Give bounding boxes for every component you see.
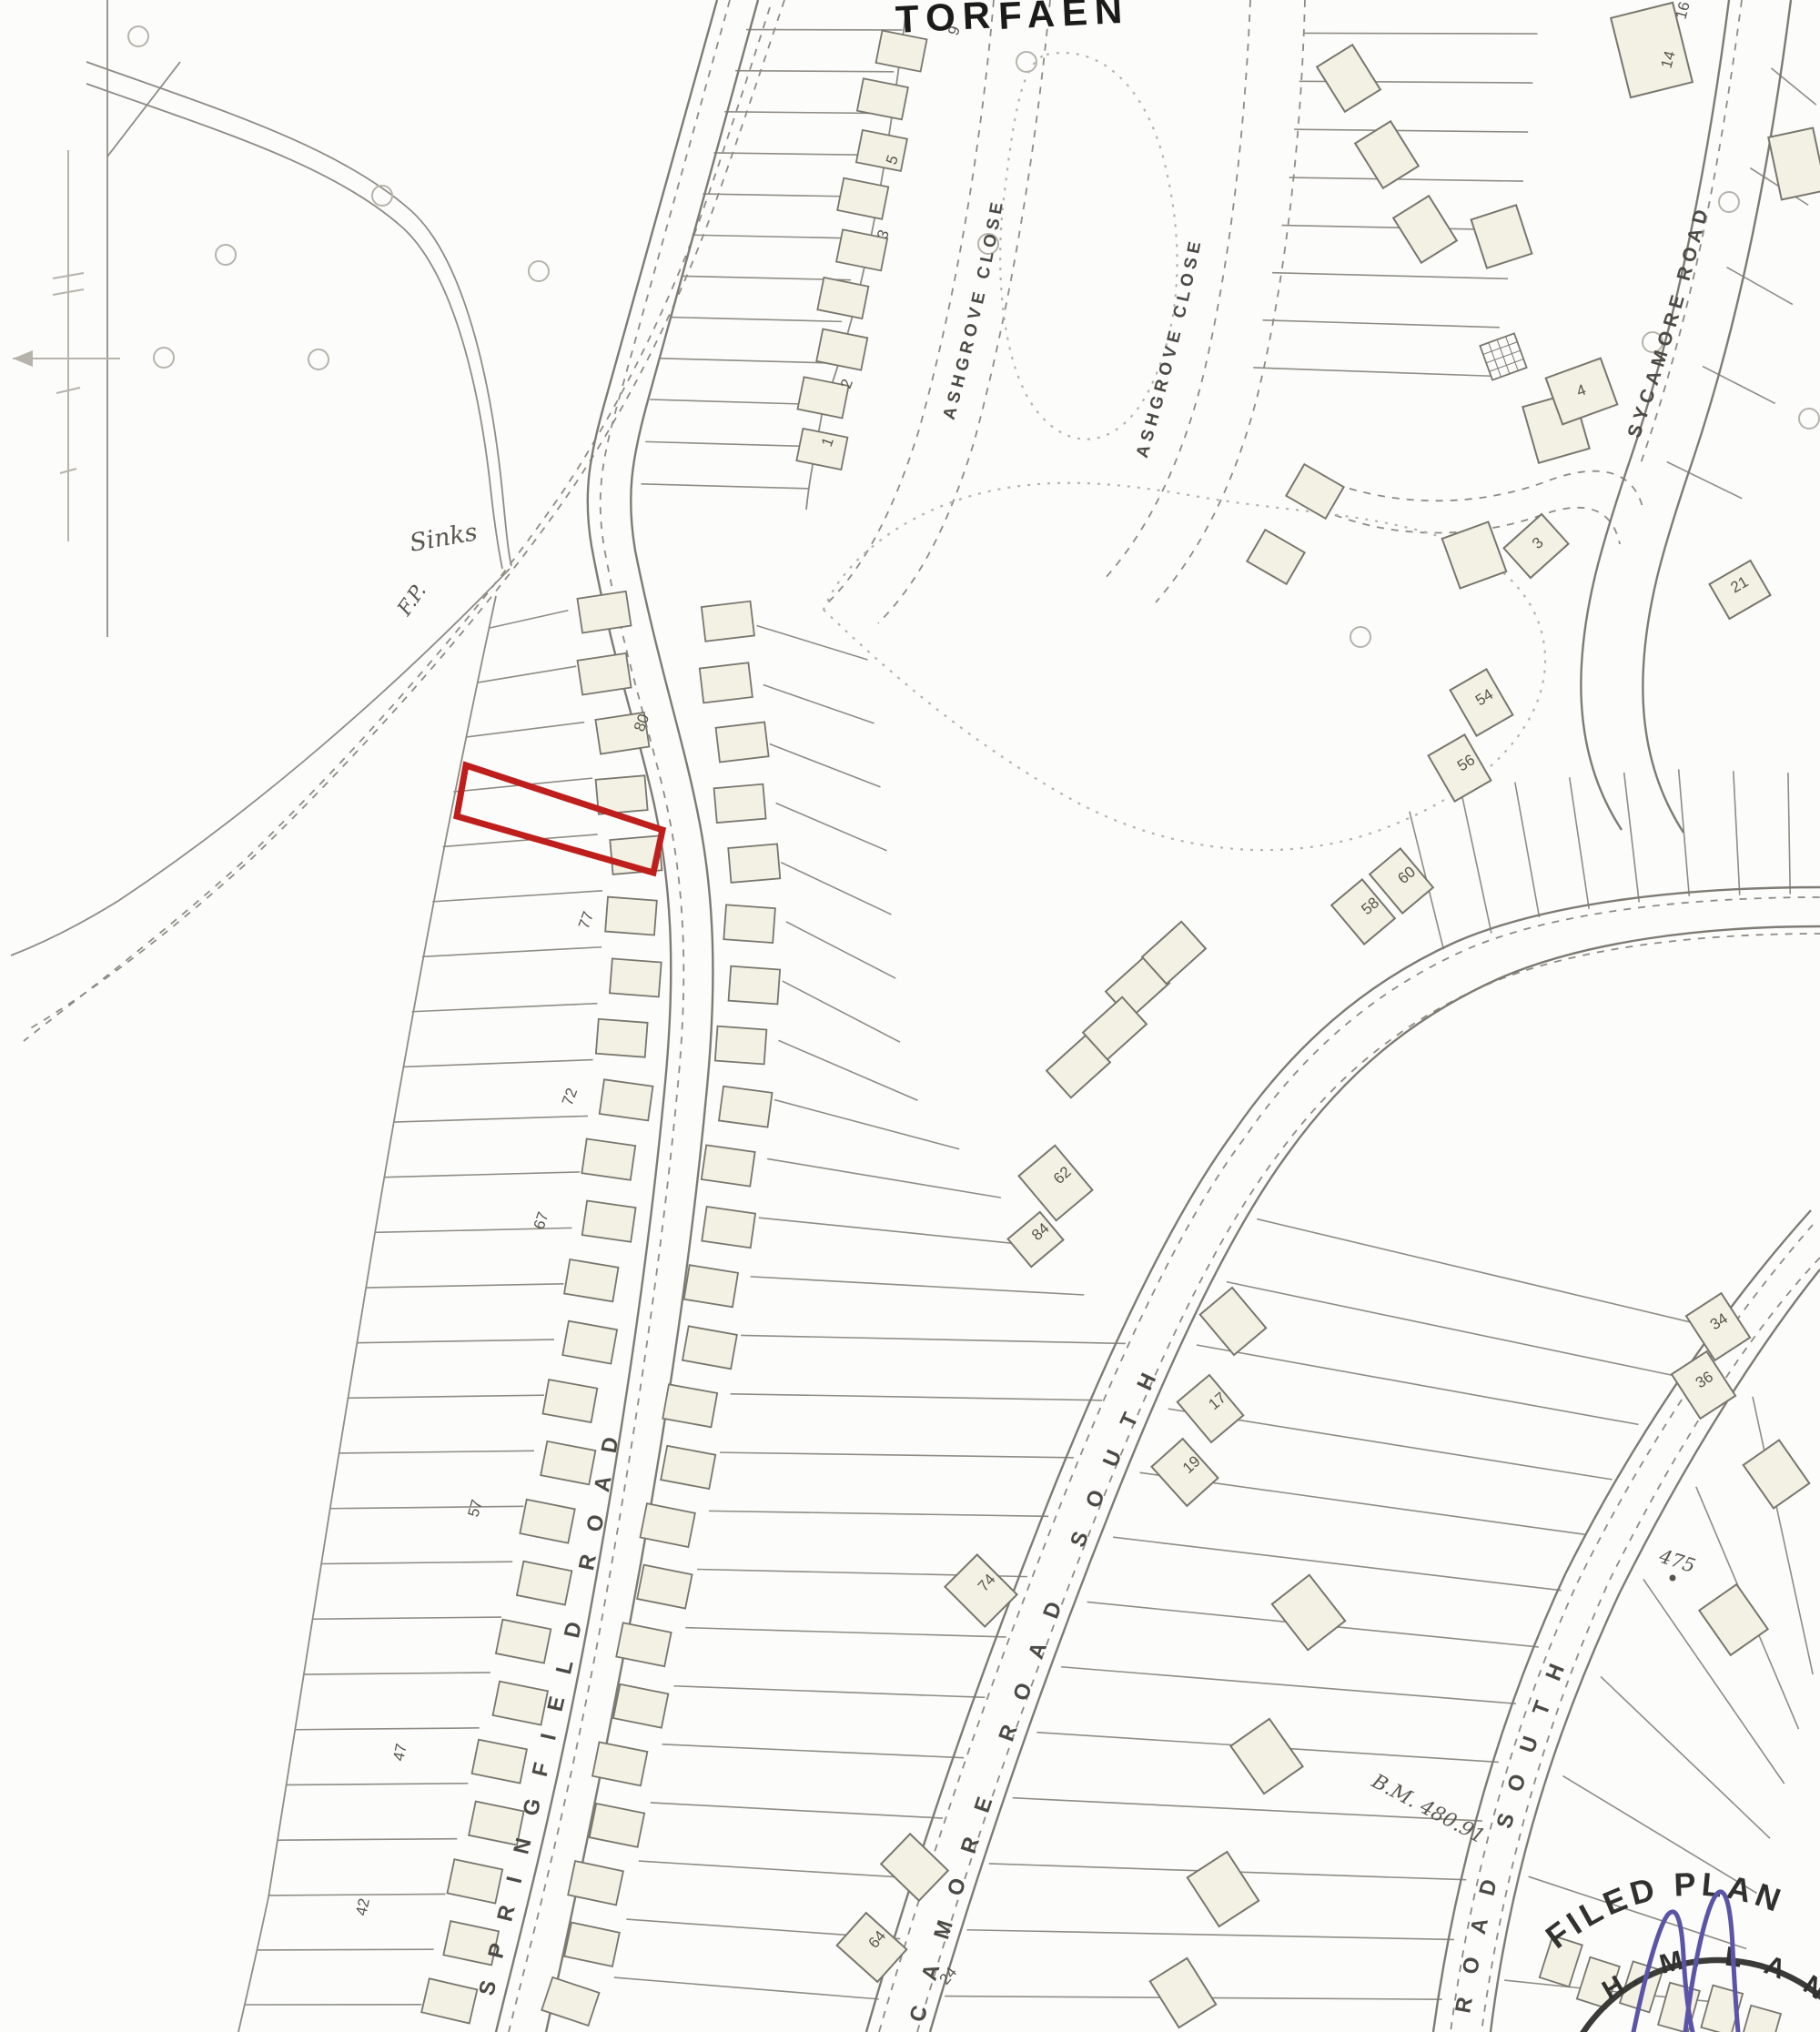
map-canvas: TORFAENSinksF.P.B.M. 480.914758077726757… bbox=[0, 0, 1820, 2032]
garden-boundary-line bbox=[735, 71, 894, 72]
road-name-ashgrove-close-west: ASHGROVE CLOSE bbox=[940, 197, 1008, 421]
garden-boundary-line bbox=[661, 359, 833, 363]
garden-boundary-line bbox=[651, 1803, 943, 1818]
garden-boundary-line bbox=[720, 1452, 1074, 1458]
garden-boundary-line bbox=[1570, 777, 1589, 909]
terrace-house bbox=[447, 1859, 502, 1903]
garden-boundary-line bbox=[709, 1511, 1048, 1516]
garden-boundary-line bbox=[478, 666, 576, 682]
garden-boundary-line bbox=[402, 1060, 592, 1067]
garden-boundary-line bbox=[713, 153, 877, 156]
garden-boundary-line bbox=[1272, 273, 1508, 279]
garden-boundary-line bbox=[1113, 1537, 1562, 1591]
post-symbol bbox=[1350, 627, 1370, 647]
garden-boundary-line bbox=[767, 1158, 1001, 1198]
dashed-boundary bbox=[879, 897, 1820, 2032]
garden-boundary-line bbox=[1257, 1219, 1712, 1328]
house bbox=[1152, 1439, 1218, 1506]
garden-boundary-line bbox=[339, 1451, 534, 1453]
house bbox=[945, 1554, 1016, 1626]
road-name-text: ASHGROVE CLOSE bbox=[1133, 236, 1206, 460]
post-symbol bbox=[308, 349, 329, 369]
terrace-house bbox=[702, 602, 754, 642]
garden-boundary-line bbox=[774, 1100, 959, 1149]
garden-boundary-line bbox=[1624, 773, 1640, 903]
garden-boundary-line bbox=[662, 1744, 965, 1758]
terrace-house bbox=[577, 591, 631, 633]
road-casing bbox=[496, 0, 717, 2032]
garden-boundary-line bbox=[366, 1284, 564, 1288]
terrace-house bbox=[564, 1259, 618, 1301]
post-symbol bbox=[216, 245, 236, 265]
terrace-house bbox=[541, 1441, 595, 1484]
house bbox=[1393, 196, 1457, 263]
garden-boundary-line bbox=[781, 863, 891, 915]
road-name-text: CAMORE ROAD SOUTH bbox=[905, 1345, 1173, 2025]
garden-boundary-line bbox=[393, 1116, 588, 1122]
terrace-house bbox=[661, 1446, 715, 1489]
garden-boundary-line bbox=[685, 1628, 1006, 1637]
house-number: 72 bbox=[559, 1086, 581, 1107]
terrace-house bbox=[1658, 1983, 1700, 2032]
road-casing bbox=[866, 887, 1820, 2032]
filed-plan-text: FILED PLAN bbox=[1539, 1865, 1790, 1956]
house bbox=[1317, 45, 1380, 112]
terrace-house bbox=[578, 653, 632, 695]
garden-boundary-line bbox=[741, 1335, 1126, 1343]
terrace-house bbox=[592, 1742, 647, 1785]
glasshouse-symbol bbox=[1480, 333, 1526, 379]
house-number: 47 bbox=[389, 1742, 410, 1762]
terrace-house bbox=[496, 1620, 551, 1663]
filed-plan-document: TORFAENSinksF.P.B.M. 480.914758077726757… bbox=[0, 0, 1820, 2032]
post-symbol bbox=[1719, 192, 1739, 212]
garden-boundary-line bbox=[1515, 783, 1540, 917]
garden-boundary-line bbox=[770, 744, 881, 787]
house bbox=[1744, 1440, 1810, 1508]
terrace-house bbox=[590, 1804, 644, 1847]
house bbox=[1200, 1288, 1267, 1355]
dotted-open-ground-edge bbox=[824, 483, 1545, 850]
terrace-house bbox=[596, 1019, 648, 1057]
garden-boundary-line bbox=[693, 235, 860, 238]
house bbox=[1178, 1375, 1244, 1442]
terrace-house bbox=[541, 1977, 599, 2026]
garden-boundary-line bbox=[432, 891, 602, 902]
garden-boundary-line bbox=[1667, 462, 1743, 499]
garden-boundary-line bbox=[1462, 796, 1491, 933]
garden-boundary-line bbox=[422, 947, 602, 957]
garden-boundary-line bbox=[268, 1894, 445, 1896]
terrace-house bbox=[702, 1207, 755, 1248]
boundary-line bbox=[86, 62, 511, 566]
house bbox=[1272, 1575, 1345, 1650]
garden-boundary-line bbox=[1788, 773, 1790, 894]
garden-boundary-line bbox=[759, 1218, 1043, 1246]
house-number: 42 bbox=[352, 1896, 373, 1916]
garden-boundary-line bbox=[1253, 368, 1491, 376]
garden-boundary-line bbox=[1294, 129, 1528, 132]
house bbox=[1247, 530, 1304, 584]
garden-boundary-line bbox=[412, 1004, 598, 1012]
field-boundaries bbox=[11, 0, 906, 2032]
garden-boundary-line bbox=[639, 1861, 922, 1878]
garden-boundary-line bbox=[329, 1506, 523, 1508]
terrace-house bbox=[796, 429, 847, 470]
garden-boundary-line bbox=[466, 723, 584, 737]
boundary-line bbox=[107, 62, 180, 157]
garden-plot-lines bbox=[245, 30, 1816, 2005]
terrace-house bbox=[640, 1503, 694, 1547]
garden-boundary-line bbox=[1289, 177, 1523, 181]
garden-boundary-line bbox=[257, 1949, 433, 1950]
terrace-house bbox=[716, 722, 769, 762]
area-name-tor: TOR bbox=[895, 0, 998, 41]
garden-boundary-line bbox=[1263, 320, 1500, 328]
terrace-house bbox=[562, 1321, 617, 1364]
terrace-house bbox=[1739, 2006, 1781, 2032]
post-symbol bbox=[128, 26, 148, 46]
terrace-house bbox=[600, 1079, 653, 1120]
filed-plan-label: FILED PLAN bbox=[1539, 1865, 1790, 1956]
post-symbol bbox=[1016, 52, 1036, 72]
terrace-house bbox=[714, 784, 766, 823]
road-name-text: SYCAMORE ROAD bbox=[1623, 202, 1714, 440]
garden-boundary-line bbox=[357, 1340, 554, 1343]
garden-boundary-line bbox=[1703, 367, 1775, 404]
map-labels: TORFAENSinksF.P.B.M. 480.914758077726757… bbox=[352, 0, 1751, 2025]
garden-boundary-line bbox=[278, 1839, 457, 1841]
hatch-line bbox=[1497, 339, 1510, 374]
garden-boundary-line bbox=[287, 1784, 469, 1785]
terrace-house bbox=[637, 1565, 692, 1609]
road-name-text: ASHGROVE CLOSE bbox=[940, 197, 1008, 421]
terrace-house bbox=[472, 1740, 527, 1784]
terrace-house bbox=[715, 1026, 767, 1065]
footpath-label: F.P. bbox=[393, 580, 431, 621]
garden-boundary-line bbox=[763, 685, 875, 723]
dashed-paths bbox=[24, 0, 1820, 2032]
road-name-sycamore-road: SYCAMORE ROAD bbox=[1623, 202, 1714, 440]
road-name-ashgrove-close-east: ASHGROVE CLOSE bbox=[1133, 236, 1206, 460]
spot-height-label: 475 bbox=[1656, 1545, 1698, 1578]
garden-boundary-line bbox=[304, 1673, 490, 1674]
house bbox=[1150, 1958, 1217, 2027]
dotted-open-ground bbox=[824, 53, 1545, 850]
terrace-house bbox=[568, 1861, 623, 1905]
garden-boundary-line bbox=[645, 441, 816, 446]
garden-boundary-line bbox=[348, 1395, 544, 1398]
garden-boundary-line bbox=[1061, 1667, 1516, 1703]
boundary-line bbox=[86, 84, 502, 569]
road-casings bbox=[496, 0, 1820, 2032]
terrace-house bbox=[582, 1200, 636, 1241]
house bbox=[1230, 1719, 1302, 1794]
road-name-sycamore-road-south: CAMORE ROAD SOUTH bbox=[905, 1345, 1173, 2025]
dotted-open-ground-edge bbox=[1000, 53, 1177, 440]
dashed-boundary bbox=[1309, 471, 1643, 511]
terrace-house bbox=[613, 1684, 668, 1728]
terrace-house bbox=[729, 966, 781, 1005]
terrace-house bbox=[493, 1682, 548, 1725]
hatch-line bbox=[1506, 337, 1519, 371]
terrace-house bbox=[542, 1380, 597, 1422]
terrace-house bbox=[616, 1623, 671, 1666]
terrace-house bbox=[564, 1923, 620, 1966]
house bbox=[1699, 1584, 1767, 1655]
benchmark-label: B.M. 480.91 bbox=[1367, 1770, 1488, 1849]
terrace-house bbox=[517, 1562, 571, 1605]
dashed-boundary bbox=[24, 7, 770, 1041]
garden-boundary-line bbox=[757, 626, 868, 660]
terrace-house bbox=[662, 1384, 717, 1427]
garden-boundary-line bbox=[614, 1977, 879, 1999]
terrace-house bbox=[605, 897, 657, 935]
terrace-house bbox=[702, 1145, 755, 1186]
garden-boundary-line bbox=[650, 399, 824, 405]
hatch-line bbox=[1490, 359, 1524, 372]
garden-boundary-line bbox=[786, 922, 895, 978]
house bbox=[1188, 1852, 1259, 1926]
garden-boundary-line bbox=[783, 981, 900, 1042]
terrace-house bbox=[723, 905, 775, 943]
garden-boundary-line bbox=[1304, 33, 1537, 34]
dashed-boundary bbox=[27, 0, 784, 1030]
garden-boundary-line bbox=[751, 1277, 1085, 1295]
house-number: 57 bbox=[465, 1498, 486, 1519]
survey-arrow-icon bbox=[13, 350, 33, 367]
garden-boundary-line bbox=[384, 1172, 580, 1178]
garden-boundary-line bbox=[1679, 769, 1690, 895]
post-symbol bbox=[529, 261, 549, 281]
terrace-house bbox=[728, 844, 780, 882]
terrace-house bbox=[719, 1087, 773, 1127]
house bbox=[881, 1834, 948, 1900]
terrace-house bbox=[520, 1500, 574, 1543]
house bbox=[1471, 205, 1532, 268]
terrace-house bbox=[700, 662, 753, 703]
garden-boundary-line bbox=[672, 318, 843, 322]
garden-boundary-line bbox=[966, 1930, 1454, 1940]
area-name-faen: FAEN bbox=[997, 0, 1130, 37]
garden-boundary-line bbox=[673, 1686, 985, 1698]
garden-boundary-line bbox=[1727, 268, 1793, 305]
garden-boundary-line bbox=[1734, 771, 1740, 895]
garden-boundary-line bbox=[778, 1040, 917, 1100]
garden-boundary-line bbox=[490, 611, 568, 628]
garden-boundary-line bbox=[295, 1728, 479, 1730]
terrace-house bbox=[610, 958, 662, 996]
spot-height-dot bbox=[1670, 1575, 1676, 1582]
garden-boundary-line bbox=[641, 484, 809, 489]
house-number: 16 bbox=[1673, 0, 1694, 21]
post-symbol bbox=[1799, 409, 1819, 429]
house bbox=[1286, 464, 1343, 519]
road-casing bbox=[546, 0, 758, 2032]
house-number: 77 bbox=[575, 909, 597, 931]
garden-boundary-line bbox=[776, 804, 887, 851]
terrace-house bbox=[581, 1138, 635, 1179]
garden-boundary-line bbox=[321, 1562, 512, 1563]
house bbox=[1768, 128, 1820, 200]
terrace-house bbox=[421, 1978, 477, 2023]
terrace-house bbox=[684, 1265, 738, 1307]
road-casing bbox=[1643, 0, 1791, 833]
garden-boundary-line bbox=[1197, 1345, 1639, 1424]
post-symbol bbox=[154, 348, 174, 368]
sinks-label: Sinks bbox=[408, 518, 480, 558]
house bbox=[1019, 1146, 1093, 1220]
garden-boundary-line bbox=[731, 1394, 1102, 1400]
terrace-house bbox=[816, 329, 867, 370]
terrace-house bbox=[682, 1326, 737, 1369]
garden-boundary-line bbox=[312, 1617, 501, 1619]
